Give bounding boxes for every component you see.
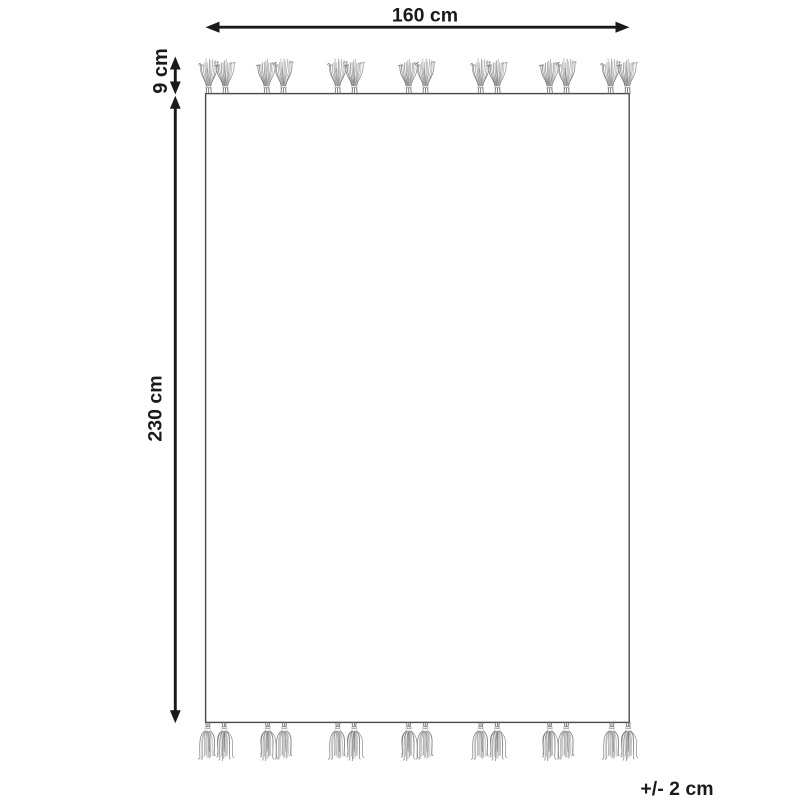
svg-text:9 cm: 9 cm [150,48,172,94]
svg-text:+/- 2 cm: +/- 2 cm [640,778,713,800]
svg-text:160 cm: 160 cm [392,5,458,27]
svg-text:230 cm: 230 cm [145,375,167,441]
